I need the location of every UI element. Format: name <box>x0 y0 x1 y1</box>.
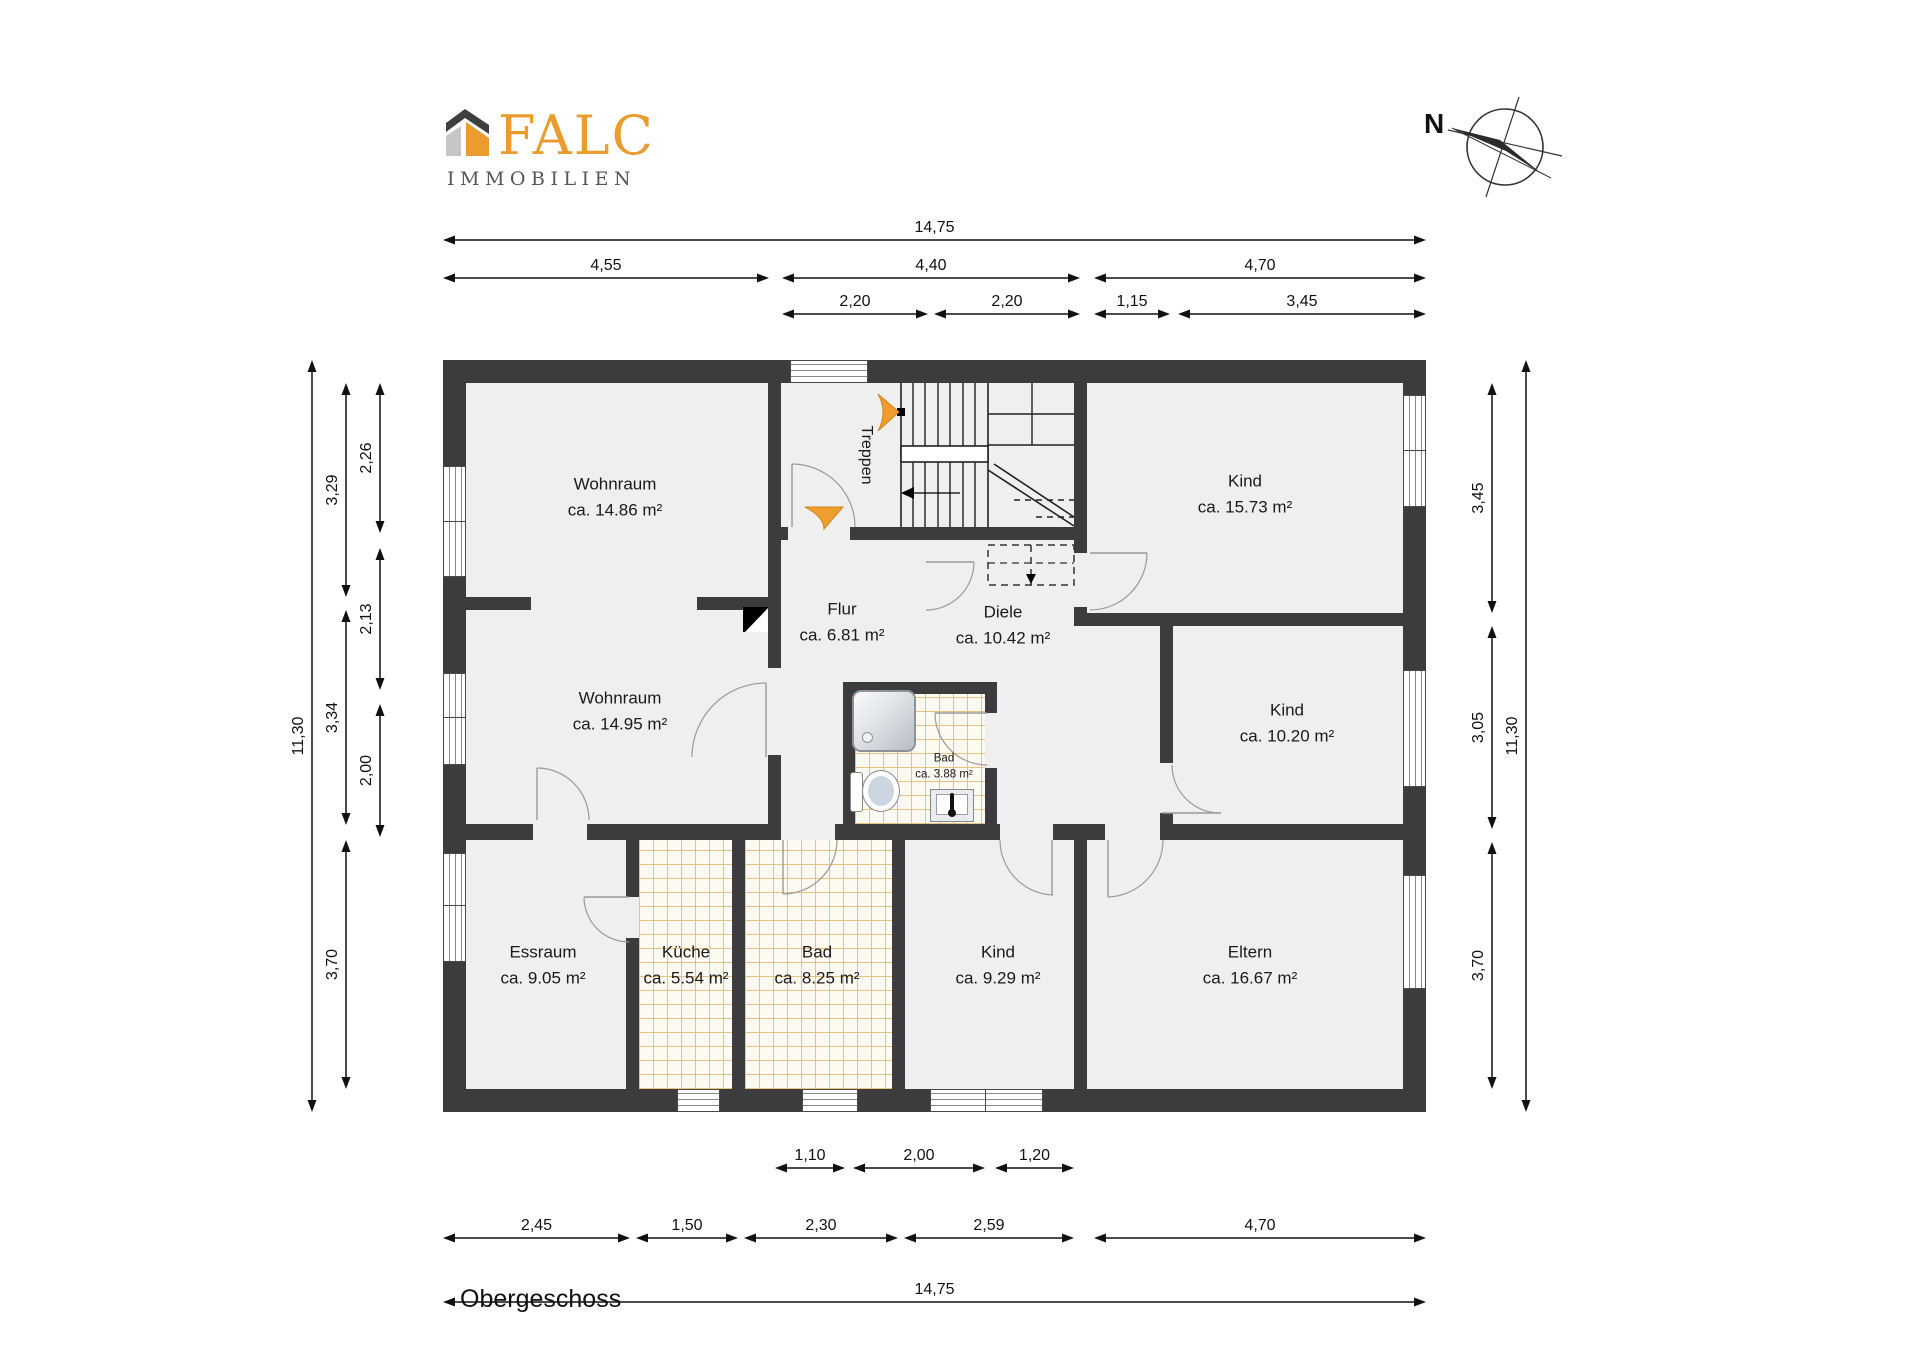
dimension-label: 14,75 <box>914 1281 954 1298</box>
plan-overlay <box>1488 601 1497 613</box>
svg-text:N: N <box>1424 108 1444 139</box>
room-label: Dieleca. 10.42 m² <box>956 600 1051 653</box>
room-area: ca. 8.25 m² <box>774 966 859 992</box>
room-name: Diele <box>956 600 1051 626</box>
plan-overlay <box>853 1164 865 1173</box>
door-swing-arc <box>1108 840 1163 897</box>
plan-overlay <box>1488 817 1497 829</box>
plan-overlay <box>1068 274 1080 283</box>
plan-overlay <box>443 1298 455 1307</box>
plan-overlay <box>1094 274 1106 283</box>
plan-overlay <box>1488 626 1497 638</box>
stair-direction-arrow-icon <box>805 507 843 529</box>
plan-overlay <box>342 585 351 597</box>
room-area: ca. 3.88 m² <box>915 767 973 783</box>
plan-overlay <box>342 383 351 395</box>
plan-overlay <box>1488 1077 1497 1089</box>
plan-overlay <box>726 1234 738 1243</box>
room-label: Flurca. 6.81 m² <box>799 597 884 650</box>
room-label: Kindca. 15.73 m² <box>1198 469 1293 522</box>
plan-overlay <box>342 610 351 622</box>
plan-overlay <box>308 1100 317 1112</box>
dimension-label: 4,40 <box>915 257 946 274</box>
dimension-label: 2,26 <box>358 442 375 473</box>
plan-overlay <box>1178 310 1190 319</box>
room-label: Elternca. 16.67 m² <box>1203 940 1298 993</box>
plan-overlay <box>744 1234 756 1243</box>
plan-overlay <box>1026 574 1036 584</box>
room-area: ca. 14.95 m² <box>573 712 668 738</box>
plan-overlay <box>994 464 1074 517</box>
plan-overlay <box>833 1164 845 1173</box>
room-name: Essraum <box>500 940 585 966</box>
plan-overlay <box>443 1234 455 1243</box>
room-area: ca. 16.67 m² <box>1203 966 1298 992</box>
plan-overlay <box>1488 383 1497 395</box>
dimension-label: 3,29 <box>324 474 341 505</box>
room-label: Badca. 8.25 m² <box>774 940 859 993</box>
door-swing-arc <box>537 768 589 820</box>
door-swing-arc <box>692 683 766 757</box>
plan-overlay <box>376 383 385 395</box>
room-label: Kindca. 10.20 m² <box>1240 698 1335 751</box>
dimension-label: 2,20 <box>839 293 870 310</box>
plan-overlay <box>901 487 914 499</box>
stair-direction-arrow-icon <box>878 394 899 431</box>
room-label: Wohnraumca. 14.86 m² <box>568 472 663 525</box>
plan-overlay <box>1094 1234 1106 1243</box>
plan-overlay <box>618 1234 630 1243</box>
dimension-label: 2,20 <box>991 293 1022 310</box>
dimension-label: 1,20 <box>1019 1147 1050 1164</box>
plan-overlay <box>1414 1234 1426 1243</box>
dimension-label: 3,34 <box>324 702 341 733</box>
room-area: ca. 9.05 m² <box>500 966 585 992</box>
door-swing-arc <box>1090 553 1147 610</box>
room-area: ca. 10.42 m² <box>956 626 1051 652</box>
compass-icon: N <box>1424 97 1562 197</box>
room-name: Bad <box>774 940 859 966</box>
plan-overlay <box>1414 1298 1426 1307</box>
dimension-label: 3,45 <box>1286 293 1317 310</box>
room-name: Eltern <box>1203 940 1298 966</box>
dimension-label: 2,00 <box>358 755 375 786</box>
dimension-label: 2,13 <box>358 603 375 634</box>
plan-overlay <box>757 274 769 283</box>
plan-overlay: N 14,754,554,404,702,202,201,153,451,102… <box>0 0 1920 1357</box>
room-name: Kind <box>1240 698 1335 724</box>
door-swing-arc <box>1172 765 1220 813</box>
dimension-label: 4,70 <box>1244 1217 1275 1234</box>
dimension-label: 1,10 <box>794 1147 825 1164</box>
plan-overlay <box>342 840 351 852</box>
room-label: Badca. 3.88 m² <box>915 751 973 782</box>
plan-overlay <box>376 825 385 837</box>
plan-overlay <box>376 678 385 690</box>
plan-overlay <box>443 274 455 283</box>
dimension-label: 11,30 <box>1504 716 1521 755</box>
plan-overlay <box>376 704 385 716</box>
plan-overlay <box>886 1234 898 1243</box>
plan-overlay <box>342 1077 351 1089</box>
plan-overlay <box>443 236 455 245</box>
plan-overlay <box>1414 274 1426 283</box>
room-label: Kücheca. 5.54 m² <box>643 940 728 993</box>
plan-overlay <box>1414 236 1426 245</box>
dimension-label: 4,70 <box>1244 257 1275 274</box>
plan-overlay <box>1522 360 1531 372</box>
plan-overlay <box>1062 1164 1074 1173</box>
room-name: Wohnraum <box>568 472 663 498</box>
plan-overlay <box>916 310 928 319</box>
floorplan-canvas: FALC IMMOBILIEN N 14,754,554,404,702,202… <box>0 0 1920 1357</box>
dimension-label: 3,05 <box>1470 712 1487 743</box>
plan-overlay <box>782 310 794 319</box>
plan-overlay <box>934 310 946 319</box>
door-swing-arc <box>783 840 837 894</box>
room-label: Essraumca. 9.05 m² <box>500 940 585 993</box>
floor-title: Obergeschoss <box>460 1285 621 1314</box>
chimney-icon <box>743 607 768 632</box>
dimension-label: 2,45 <box>521 1217 552 1234</box>
plan-overlay <box>775 1164 787 1173</box>
dimension-label: 11,30 <box>290 716 307 755</box>
plan-overlay <box>1062 1234 1074 1243</box>
plan-overlay <box>636 1234 648 1243</box>
plan-overlay <box>342 813 351 825</box>
dimension-label: 3,45 <box>1470 482 1487 513</box>
plan-overlay <box>1068 310 1080 319</box>
room-area: ca. 6.81 m² <box>799 623 884 649</box>
plan-overlay <box>782 274 794 283</box>
door-swing-arc <box>584 897 629 942</box>
dimension-label: 2,59 <box>973 1217 1004 1234</box>
plan-overlay <box>973 1164 985 1173</box>
room-area: ca. 10.20 m² <box>1240 724 1335 750</box>
plan-overlay <box>901 446 988 462</box>
room-name: Kind <box>1198 469 1293 495</box>
dimension-label: 3,70 <box>324 949 341 980</box>
room-name: Bad <box>915 751 973 767</box>
room-area: ca. 15.73 m² <box>1198 495 1293 521</box>
dimension-label: 14,75 <box>914 219 954 236</box>
plan-overlay <box>995 1164 1007 1173</box>
stairs-label: Treppen <box>857 426 875 485</box>
room-name: Wohnraum <box>573 686 668 712</box>
dimension-label: 1,50 <box>671 1217 702 1234</box>
dimension-label: 2,30 <box>805 1217 836 1234</box>
plan-overlay <box>1414 310 1426 319</box>
plan-overlay <box>1488 842 1497 854</box>
room-name: Flur <box>799 597 884 623</box>
room-area: ca. 9.29 m² <box>955 966 1040 992</box>
dimension-label: 4,55 <box>590 257 621 274</box>
dimension-label: 1,15 <box>1116 293 1147 310</box>
room-area: ca. 14.86 m² <box>568 498 663 524</box>
room-name: Kind <box>955 940 1040 966</box>
room-area: ca. 5.54 m² <box>643 966 728 992</box>
room-name: Küche <box>643 940 728 966</box>
dimension-label: 3,70 <box>1470 950 1487 981</box>
plan-overlay <box>376 548 385 560</box>
plan-overlay <box>1094 310 1106 319</box>
dimension-label: 2,00 <box>903 1147 934 1164</box>
plan-overlay <box>376 521 385 533</box>
door-swing-arc <box>1000 840 1053 895</box>
room-label: Kindca. 9.29 m² <box>955 940 1040 993</box>
plan-overlay <box>308 360 317 372</box>
plan-overlay <box>1522 1100 1531 1112</box>
plan-overlay <box>1158 310 1170 319</box>
plan-overlay <box>904 1234 916 1243</box>
room-label: Wohnraumca. 14.95 m² <box>573 686 668 739</box>
